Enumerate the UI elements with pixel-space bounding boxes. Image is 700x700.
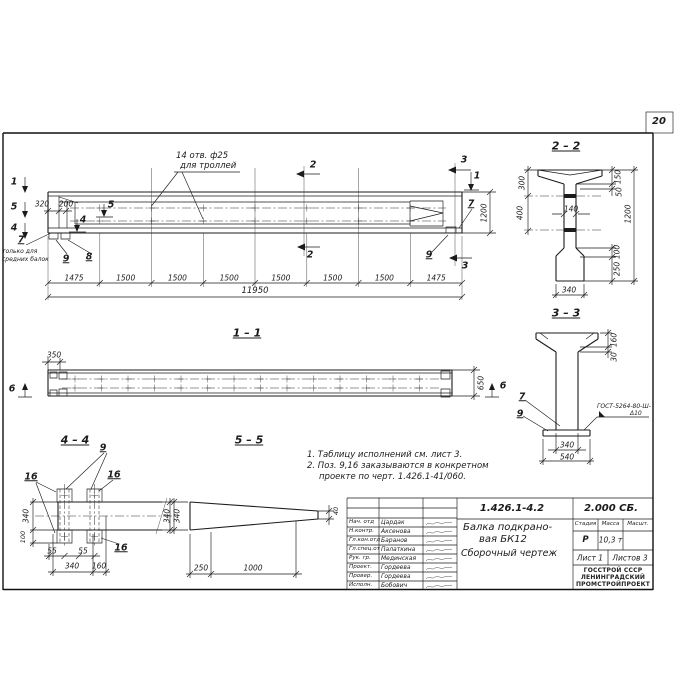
tb-role: Провер. <box>349 574 372 580</box>
doc-number: 1.426.1-4.2 <box>480 504 544 514</box>
dim-150: 150 <box>614 170 622 184</box>
dim-340-left-sec44: 340 <box>22 509 30 523</box>
dim-340-sec33: 340 <box>560 441 574 449</box>
section-mark-6-left: 6 <box>9 384 16 394</box>
dim-350: 350 <box>47 351 61 359</box>
tb-name: Гордеева <box>381 574 411 580</box>
dim-100-sec44: 100 <box>20 531 27 543</box>
dim-540: 540 <box>560 453 574 461</box>
dim-segment: 1475 <box>427 274 446 282</box>
dim-55-a: 55 <box>47 547 57 555</box>
tb-name: Бобович <box>381 583 407 589</box>
dim-650: 650 <box>477 376 485 390</box>
pos-label-16-br: 16 <box>114 543 127 553</box>
section-mark-5-inner: 5 <box>108 200 115 210</box>
view-title-1-1: 1 – 1 <box>233 328 261 339</box>
stage-value: Р <box>582 536 588 545</box>
dim-200: 200 <box>59 200 73 208</box>
tb-name: Мединская <box>381 556 416 562</box>
org-line3: ПРОМСТРОЙПРОЕКТ <box>576 582 650 588</box>
tb-role: Н.контр. <box>349 529 374 535</box>
tb-role: Исполн. <box>349 583 372 589</box>
pos-label-16-tl: 16 <box>24 472 37 482</box>
sheets-label: Листов 3 <box>612 554 647 562</box>
col-scale: Масшт. <box>627 522 649 528</box>
section-title-5-5: 5 – 5 <box>235 435 263 446</box>
tb-name: Цардак <box>381 520 405 526</box>
dim-segment: 1500 <box>116 274 135 282</box>
section-mark-5: 5 <box>11 202 18 212</box>
section-title-3-3: 3 – 3 <box>552 308 580 319</box>
tb-name: Аксенова <box>381 529 411 535</box>
dim-segment: 1500 <box>168 274 187 282</box>
drawing-title-line3: Сборочный чертеж <box>461 549 557 559</box>
note-line-1: 1. Таблицу исполнений см. лист 3. <box>307 451 462 460</box>
doc-code: 2.000 СБ. <box>584 504 638 514</box>
dim-segment: 1475 <box>64 274 83 282</box>
pos-label-7-right: 7 <box>468 199 475 209</box>
tb-role: Гл.кон.отд <box>349 538 380 544</box>
page-number: 20 <box>652 117 666 127</box>
section-mark-4: 4 <box>11 223 18 233</box>
section-title-2-2: 2 – 2 <box>552 141 580 152</box>
drawing-linework <box>0 0 700 700</box>
dim-300: 300 <box>518 176 526 190</box>
sheet-label: Лист 1 <box>577 554 603 562</box>
pos-label-7-sec33: 7 <box>519 392 526 402</box>
col-mass: Масса <box>602 522 620 528</box>
tb-role: Рук. гр. <box>349 556 371 562</box>
hole-note-line2: для троллей <box>180 162 236 171</box>
section-mark-6-right: 6 <box>500 381 507 391</box>
dim-segment: 1500 <box>271 274 290 282</box>
dim-50: 50 <box>615 187 623 197</box>
tb-name: Гордеева <box>381 565 411 571</box>
tb-role: Нач. отд <box>349 520 374 526</box>
dim-160: 160 <box>610 333 618 347</box>
dim-340-sec22: 340 <box>562 286 576 294</box>
dim-1200-sec: 1200 <box>624 204 632 223</box>
section-title-4-4: 4 – 4 <box>61 435 89 446</box>
dim-340-right-sec44: 340 <box>173 509 181 523</box>
drawing-title-line2: вая БК12 <box>479 535 527 545</box>
section-mark-3-bottom: 3 <box>462 261 469 271</box>
pos-label-9: 9 <box>63 254 70 264</box>
tb-role: Проект. <box>349 565 372 571</box>
tb-name: Баранов <box>381 538 407 544</box>
pos-label-16-tr: 16 <box>107 470 120 480</box>
tb-role: Гл.спец.от <box>349 547 380 553</box>
hole-note-line1: 14 отв. ф25 <box>176 152 228 161</box>
section-mark-2-bottom: 2 <box>307 250 314 260</box>
pos-label-9-sec33: 9 <box>517 409 524 419</box>
dim-320: 320 <box>35 200 49 208</box>
dim-1200-main: 1200 <box>480 203 488 222</box>
note-line-3: проекте по черт. 1.426.1-41/060. <box>319 473 466 482</box>
dim-segment: 1500 <box>323 274 342 282</box>
section-mark-3-top: 3 <box>461 155 468 165</box>
drawing-title-line1: Балка подкрано- <box>463 523 552 533</box>
dim-340-bottom-sec44: 340 <box>65 562 79 570</box>
dim-100-sec22: 100 <box>613 245 621 259</box>
pos-label-8: 8 <box>86 252 93 262</box>
section-mark-1: 1 <box>11 177 18 187</box>
pos-label-9-sec44: 9 <box>100 443 107 453</box>
pos7-note-line1: только для <box>2 249 37 255</box>
pos7-note-line2: средних балок <box>2 257 49 263</box>
weld-note-line1: ГОСТ-5264-80-Ш- <box>597 404 651 410</box>
weld-note-line2: Δ10 <box>630 411 642 417</box>
tb-name: Палаткина <box>381 547 415 553</box>
note-line-2: 2. Поз. 9,16 заказываются в конкретном <box>307 462 489 471</box>
mass-value: 10,3 т <box>599 536 622 544</box>
dim-30: 30 <box>610 352 618 362</box>
pos-label-7: 7 <box>18 235 25 245</box>
dim-250: 250 <box>194 564 208 572</box>
section-mark-2-top: 2 <box>310 160 317 170</box>
dim-340-sec55: 340 <box>163 509 171 523</box>
col-stage: Стадия <box>575 522 596 528</box>
dim-400: 400 <box>516 206 524 220</box>
dim-1000: 1000 <box>243 564 262 572</box>
section-mark-1-right: 1 <box>474 171 481 181</box>
dim-160-sec44: 160 <box>92 562 106 570</box>
dim-segment: 1500 <box>220 274 239 282</box>
section-mark-4-inner: 4 <box>80 215 87 225</box>
dim-segment: 1500 <box>375 274 394 282</box>
dim-40: 40 <box>333 507 340 515</box>
dim-total: 11950 <box>241 287 268 296</box>
pos-label-9-right: 9 <box>426 250 433 260</box>
dim-140: 140 <box>564 205 578 213</box>
dim-55-b: 55 <box>78 547 88 555</box>
drawing-sheet: 20 14 отв. ф25 для троллей 320 200 1200 … <box>0 0 700 700</box>
dim-250-sec22: 250 <box>613 262 621 276</box>
